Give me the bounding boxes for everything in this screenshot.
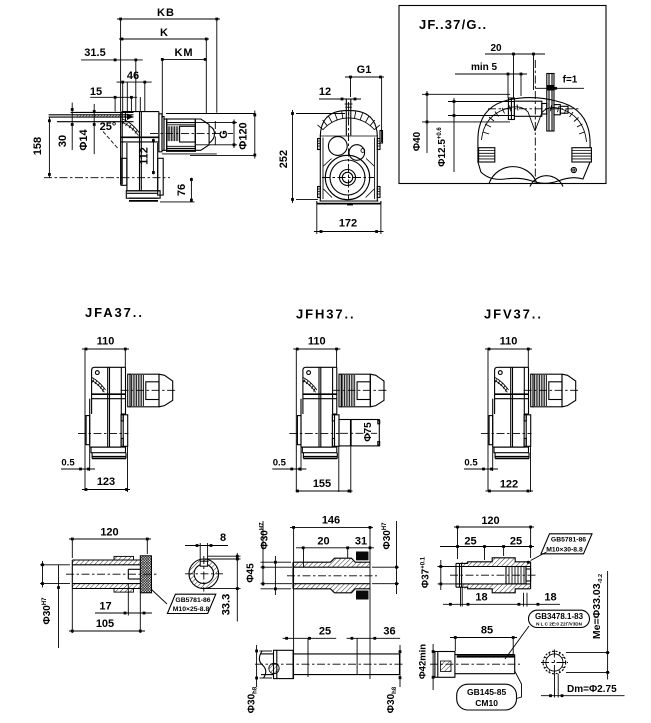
svg-text:12: 12 bbox=[319, 86, 331, 98]
svg-text:123: 123 bbox=[97, 476, 115, 488]
svg-text:252: 252 bbox=[278, 150, 290, 168]
svg-text:GB3478.1-83: GB3478.1-83 bbox=[535, 612, 584, 621]
svg-text:min 5: min 5 bbox=[471, 62, 498, 73]
svg-text:17: 17 bbox=[99, 601, 111, 613]
svg-text:Φ120: Φ120 bbox=[238, 122, 250, 149]
svg-text:120: 120 bbox=[481, 515, 499, 527]
svg-text:30: 30 bbox=[57, 135, 69, 147]
svg-text:25°: 25° bbox=[100, 121, 117, 133]
svg-text:GB145-85: GB145-85 bbox=[467, 687, 506, 697]
svg-text:KM: KM bbox=[174, 47, 193, 59]
svg-text:K: K bbox=[160, 27, 168, 39]
svg-text:31.5: 31.5 bbox=[84, 47, 105, 59]
svg-text:46: 46 bbox=[127, 70, 139, 82]
svg-text:25: 25 bbox=[510, 536, 522, 548]
svg-text:158: 158 bbox=[32, 137, 44, 155]
svg-text:G: G bbox=[218, 130, 230, 139]
svg-text:KB: KB bbox=[157, 7, 175, 19]
svg-text:120: 120 bbox=[100, 527, 118, 539]
svg-text:JF..37/G..: JF..37/G.. bbox=[419, 17, 487, 32]
svg-text:8: 8 bbox=[220, 532, 226, 544]
svg-text:25: 25 bbox=[464, 536, 476, 548]
svg-text:Dm=Φ2.75: Dm=Φ2.75 bbox=[567, 684, 617, 695]
svg-text:JFH37..: JFH37.. bbox=[296, 307, 356, 322]
svg-text:Φ75: Φ75 bbox=[363, 422, 374, 442]
svg-text:85: 85 bbox=[481, 625, 493, 637]
svg-text:76: 76 bbox=[176, 184, 188, 196]
svg-text:112: 112 bbox=[139, 147, 151, 165]
svg-text:GB5781-86: GB5781-86 bbox=[551, 537, 586, 544]
svg-text:20: 20 bbox=[490, 43, 502, 54]
svg-text:15: 15 bbox=[90, 86, 102, 98]
svg-text:JFV37..: JFV37.. bbox=[484, 307, 543, 322]
svg-text:M10×30-8.8: M10×30-8.8 bbox=[546, 547, 583, 554]
svg-text:20: 20 bbox=[317, 536, 329, 548]
svg-text:M10×25-8.8: M10×25-8.8 bbox=[173, 606, 210, 613]
svg-text:Φ14: Φ14 bbox=[78, 128, 90, 150]
svg-text:Φ40: Φ40 bbox=[412, 131, 423, 151]
svg-text:105: 105 bbox=[96, 618, 114, 630]
svg-text:122: 122 bbox=[500, 479, 518, 491]
svg-text:18: 18 bbox=[544, 592, 556, 604]
svg-text:G1: G1 bbox=[357, 64, 372, 76]
svg-text:18: 18 bbox=[475, 592, 487, 604]
svg-text:CM10: CM10 bbox=[475, 698, 498, 708]
svg-text:f=1: f=1 bbox=[563, 75, 578, 86]
svg-text:N L C 2E:0 Z2Γ/V3DN: N L C 2E:0 Z2Γ/V3DN bbox=[536, 622, 583, 627]
svg-text:Me=Φ33.03-0.2: Me=Φ33.03-0.2 bbox=[591, 574, 604, 639]
svg-text:25: 25 bbox=[319, 626, 331, 638]
svg-text:172: 172 bbox=[339, 218, 357, 230]
svg-text:JFA37..: JFA37.. bbox=[85, 305, 144, 320]
svg-text:Φ42min: Φ42min bbox=[418, 644, 429, 679]
svg-text:Φ45: Φ45 bbox=[246, 563, 257, 583]
svg-text:146: 146 bbox=[322, 515, 340, 527]
svg-text:GB5781-86: GB5781-86 bbox=[175, 597, 210, 604]
svg-text:33.3: 33.3 bbox=[221, 594, 233, 615]
svg-text:36: 36 bbox=[383, 626, 395, 638]
svg-text:155: 155 bbox=[313, 478, 331, 490]
svg-text:31: 31 bbox=[355, 536, 367, 548]
